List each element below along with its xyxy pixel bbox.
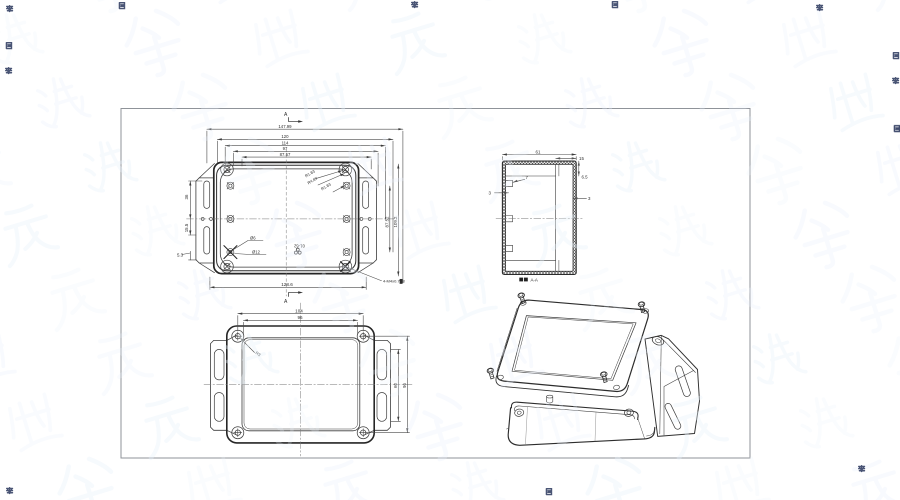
- svg-text:87.57: 87.57: [280, 152, 291, 157]
- svg-text:114: 114: [282, 141, 289, 146]
- svg-text:87.52: 87.52: [385, 216, 390, 228]
- svg-text:96: 96: [402, 383, 407, 388]
- svg-text:128.6: 128.6: [281, 282, 293, 287]
- svg-text:15.5: 15.5: [184, 223, 189, 232]
- svg-text:96: 96: [297, 315, 303, 320]
- svg-text:61: 61: [536, 149, 541, 154]
- svg-text:147.99: 147.99: [278, 124, 292, 129]
- svg-text:Ø6: Ø6: [250, 236, 256, 241]
- svg-text:A-A: A-A: [531, 277, 538, 282]
- svg-text:36: 36: [184, 194, 189, 199]
- svg-text:15: 15: [579, 156, 584, 161]
- svg-text:97: 97: [283, 146, 288, 151]
- svg-text:6.5: 6.5: [582, 175, 589, 180]
- svg-text:120: 120: [281, 134, 289, 139]
- svg-text:104: 104: [295, 309, 303, 314]
- svg-text:5.3: 5.3: [177, 253, 184, 258]
- svg-text:Ø12: Ø12: [252, 250, 261, 255]
